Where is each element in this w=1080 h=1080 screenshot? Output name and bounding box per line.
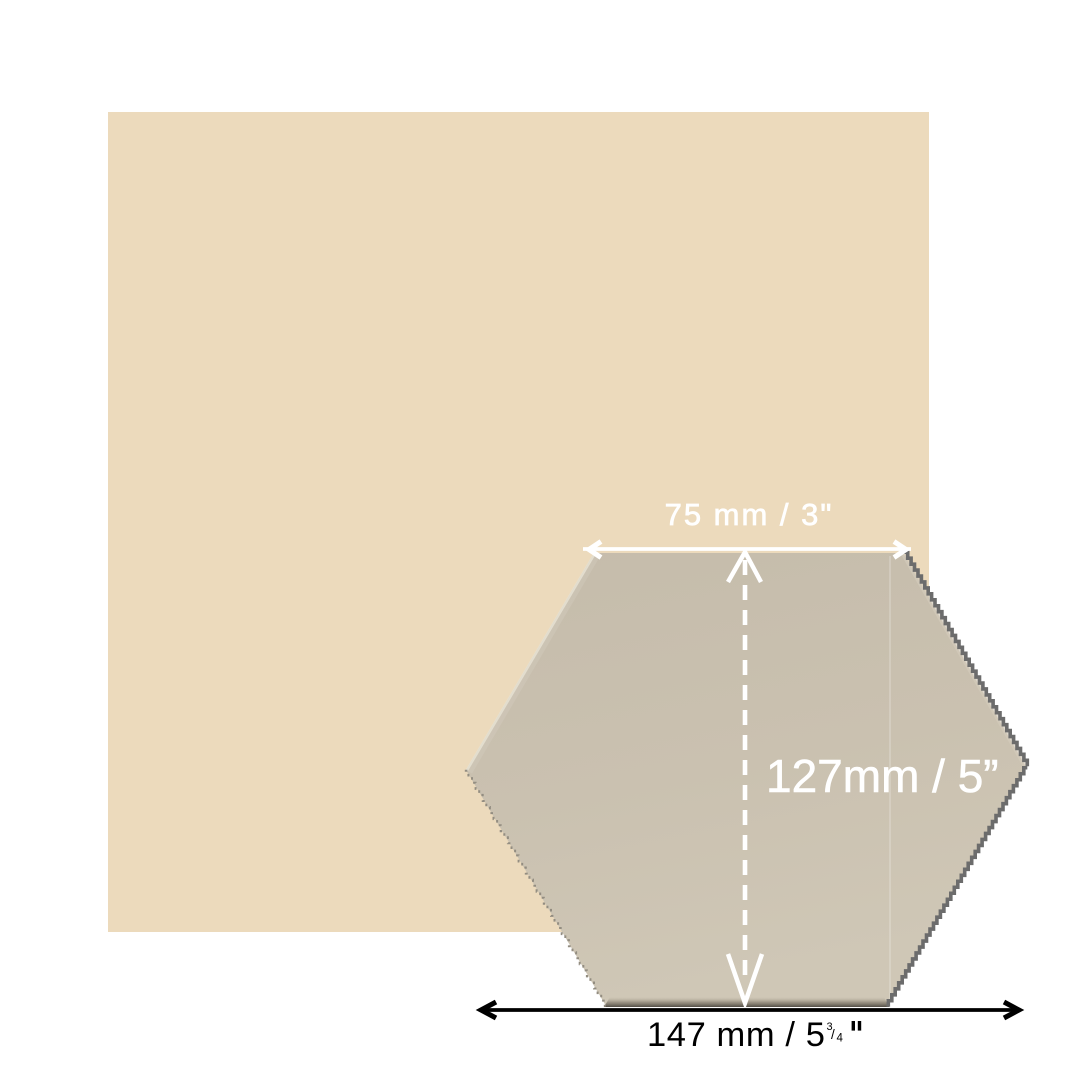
svg-text:147 mm / 5: 147 mm / 5 — [647, 1016, 826, 1054]
svg-text:75 mm / 3": 75 mm / 3" — [665, 497, 834, 532]
svg-text:127mm / 5”: 127mm / 5” — [766, 750, 999, 802]
svg-text:/: / — [831, 1027, 835, 1042]
svg-text:4: 4 — [837, 1033, 844, 1045]
